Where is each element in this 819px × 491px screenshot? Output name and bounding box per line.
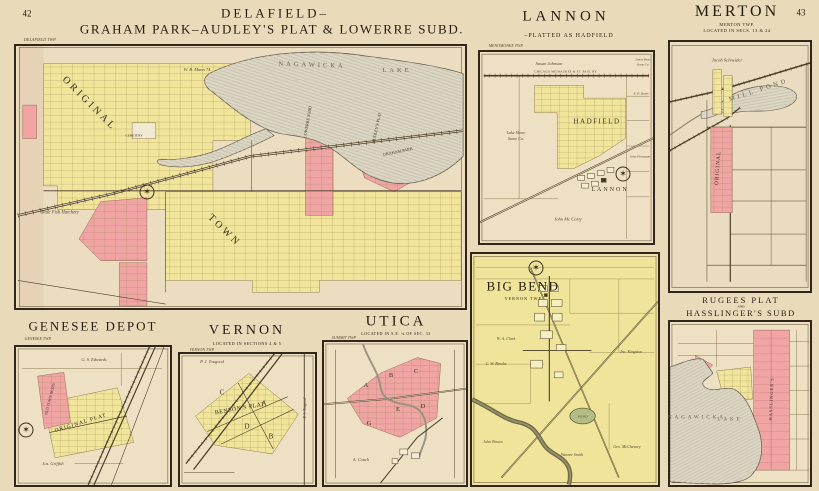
lannon-subtitle: –PLATTED AS HADFIELD [524, 33, 613, 39]
vernon-title: VERNON [209, 324, 285, 338]
lannon-map-art [480, 52, 653, 243]
vernon-sub: LOCATED IN SECTIONS 4 & 5 [213, 342, 282, 346]
atlas-page: 42 43 DELAFIELD– GRAHAM PARK–AUDLEY'S PL… [0, 0, 819, 491]
label-brown: John Brown [483, 440, 502, 444]
label-rugees-lake: LAKE [717, 418, 742, 423]
merton-map-panel [668, 40, 812, 293]
label-utica-block-d: D [421, 404, 426, 411]
label-utica-block-a: A [364, 383, 369, 390]
lannon-twp-label: MENOMONEE TWP. [489, 44, 524, 48]
delafield-map-panel [14, 44, 467, 310]
vernon-map-panel [178, 352, 317, 487]
genesee-twp-label: GENESEE TWP. [25, 337, 52, 341]
label-tougood-top: P. J. Tougood [200, 360, 224, 364]
utica-map-panel [322, 340, 468, 487]
label-block-d: D [244, 424, 249, 431]
lannon-title: LANNON [522, 10, 609, 25]
label-mccarty: John Mc Carty [554, 218, 582, 223]
genesee-title: GENESEE DEPOT [29, 320, 158, 333]
label-cemetery: CEMETERY [126, 134, 143, 137]
page-number-left: 42 [23, 10, 32, 19]
vernon-map-art [180, 354, 315, 485]
label-mcchesney: Geo. McChesney [613, 445, 640, 449]
label-block-c: C [220, 390, 225, 397]
merton-title: MERTON [695, 4, 779, 20]
label-lake: LAKE [382, 68, 411, 75]
label-utica-block-c: C [414, 369, 418, 376]
merton-sub1: MERTON TWP. [719, 23, 754, 28]
label-lannon-village: LANNON [591, 187, 628, 193]
rugees-title-2: HASSLINGER'S SUBD [686, 309, 795, 318]
utica-title: UTICA [366, 315, 427, 330]
label-finnegan: John Finnegan [630, 155, 650, 158]
compass-rose-icon [529, 261, 544, 276]
label-schneider: Jacob Schneider [712, 59, 743, 64]
label-ep-davis: E. P. Davis [633, 92, 648, 95]
label-pond: POND [578, 416, 588, 419]
label-smith: Warner Smith [561, 453, 583, 457]
label-davis-bros-1: Davis Bros. [636, 58, 651, 61]
label-utica-block-b: B [389, 373, 393, 380]
label-fish-hatchery: State Fish Hatchery [41, 212, 79, 217]
utica-sub: LOCATED IN S.E. ¼ OF SEC. 33 [361, 332, 431, 336]
label-block-b: B [269, 434, 274, 441]
label-utica-block-g: G [367, 421, 372, 428]
label-couch: A. Couch [353, 458, 369, 462]
rugees-title-1: RUGEES PLAT [702, 296, 780, 305]
label-lake-shore-stone-2: Stone Co. [508, 137, 524, 141]
delafield-title: DELAFIELD– [221, 7, 329, 20]
compass-rose-icon [616, 167, 631, 182]
label-brooks: C. W. Brooks [486, 362, 507, 366]
label-hadfield: HADFIELD [574, 119, 621, 126]
merton-map-art [670, 42, 810, 291]
utica-map-art [324, 342, 466, 485]
delafield-subtitle: GRAHAM PARK–AUDLEY'S PLAT & LOWERRE SUBD… [80, 23, 464, 36]
label-utica-block-e: E [396, 407, 400, 414]
label-clark: W. A. Clark [497, 337, 515, 341]
compass-rose-icon [19, 423, 34, 438]
bigbend-twp-label: VERNON TWP. [505, 297, 544, 301]
rugees-map-panel [668, 320, 812, 487]
bigbend-title: BIG BEND [486, 280, 559, 293]
label-griffith: Jos. Griffith [42, 462, 63, 466]
compass-rose-icon [140, 185, 155, 200]
rugees-map-art [670, 322, 810, 485]
delafield-map-art [16, 46, 465, 308]
label-davis-bros-2: Stone Co. [637, 63, 649, 66]
merton-sub2: LOCATED IN SECS. 13 & 24 [703, 29, 770, 34]
label-lake-shore-stone-1: Lake Shore [507, 131, 526, 135]
page-number-right: 43 [797, 9, 806, 18]
label-kingston: Jno. Kingston [620, 350, 642, 354]
label-edwards: G. S. Edwards [81, 358, 106, 362]
label-tougood-right: P. J. Tougood [304, 398, 308, 418]
label-susan-johnson: Susan Johnson [536, 62, 563, 67]
label-wb-mann: W. B. Mann 74 [184, 68, 211, 73]
delafield-twp-label: DELAFIELD TWP. [24, 38, 56, 42]
label-railroad-name: CHICAGO MILWAUKEE & ST. PAUL RY. [534, 71, 597, 74]
label-block-a: A [261, 401, 266, 408]
